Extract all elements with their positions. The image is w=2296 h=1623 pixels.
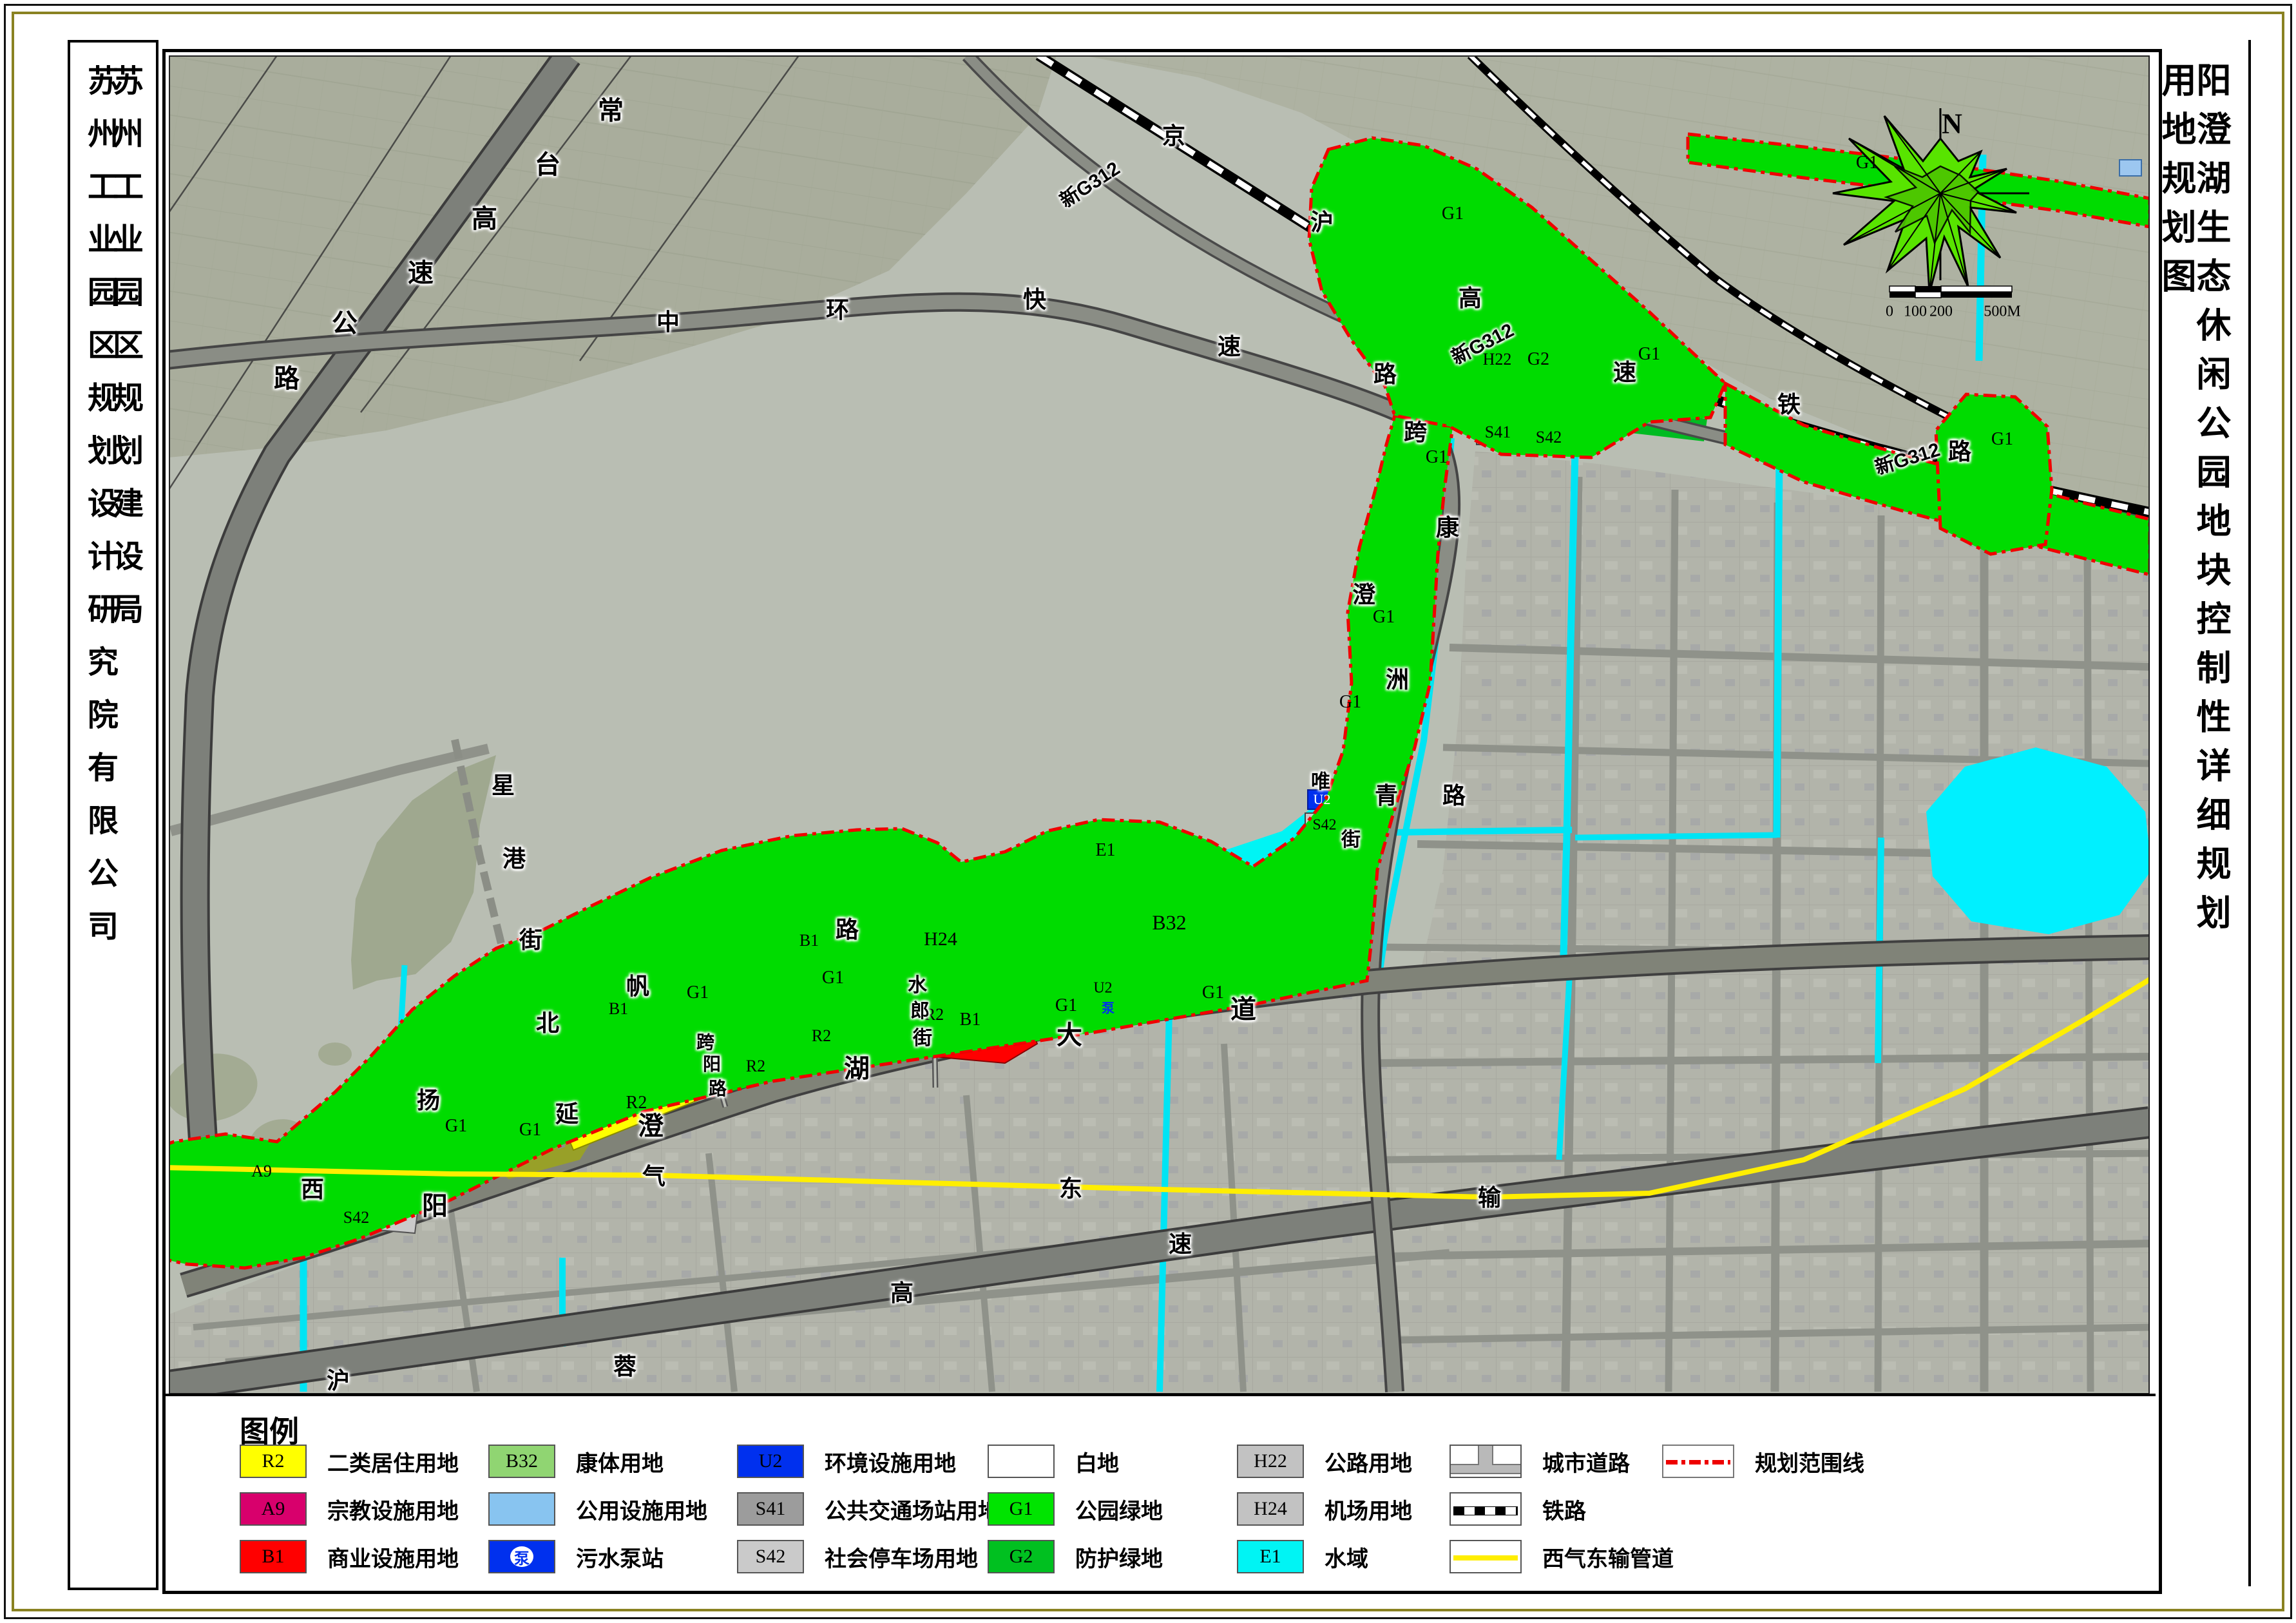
planning-map <box>0 0 2296 1623</box>
map-legend-divider <box>162 1394 2156 1396</box>
scale-bar <box>1889 286 2012 298</box>
plan-sheet: 苏州工业园区规划建设局 苏州工业园区规划设计研究院有限公司 阳澄湖生态休闲公园地… <box>0 0 2296 1623</box>
